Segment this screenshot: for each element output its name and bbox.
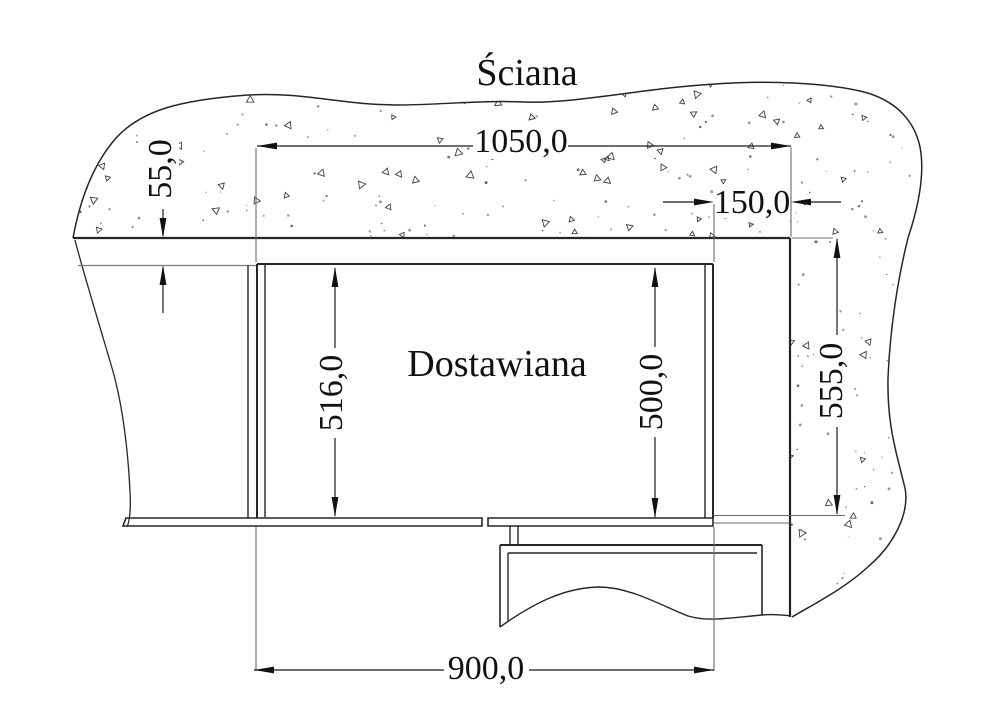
- stipple-dot: [881, 456, 882, 457]
- stipple-dot: [161, 432, 164, 435]
- dim-1050-arrow-left: [257, 143, 277, 150]
- stipple-dot: [355, 406, 357, 408]
- stipple-dot: [464, 287, 467, 290]
- stipple-dot: [375, 204, 377, 206]
- stipple-dot: [71, 268, 73, 270]
- stipple-dot: [206, 620, 207, 621]
- stipple-dot: [627, 476, 630, 479]
- stipple-dot: [166, 501, 168, 503]
- stipple-dot: [826, 171, 827, 172]
- stipple-triangle: [151, 477, 158, 483]
- stipple-dot: [797, 384, 800, 387]
- stipple-dot: [541, 566, 543, 568]
- stipple-dot: [861, 200, 863, 202]
- stipple-dot: [856, 488, 858, 490]
- stipple-dot: [195, 300, 197, 302]
- stipple-dot: [433, 485, 435, 487]
- stipple-dot: [468, 440, 470, 442]
- stipple-triangle: [355, 179, 365, 189]
- stipple-dot: [625, 257, 628, 260]
- stipple-dot: [177, 546, 180, 549]
- stipple-dot: [735, 445, 738, 448]
- countertop-band: [123, 516, 845, 527]
- stipple-dot: [888, 487, 891, 490]
- stipple-dot: [842, 577, 844, 579]
- stipple-dot: [487, 290, 490, 293]
- stipple-triangle: [834, 75, 843, 84]
- stipple-dot: [82, 599, 84, 601]
- stipple-dot: [96, 267, 98, 269]
- stipple-dot: [732, 420, 735, 423]
- stipple-dot: [474, 320, 476, 322]
- stipple-triangle: [171, 584, 181, 594]
- stipple-triangle: [455, 148, 464, 157]
- stipple-dot: [476, 587, 478, 589]
- stipple-dot: [911, 331, 913, 333]
- stipple-dot: [186, 329, 189, 332]
- stipple-triangle: [299, 348, 308, 357]
- stipple-dot: [82, 86, 84, 88]
- stipple-dot: [867, 601, 869, 603]
- stipple-triangle: [317, 169, 324, 177]
- stipple-dot: [151, 605, 153, 607]
- stipple-triangle: [475, 311, 482, 318]
- stipple-dot: [566, 533, 569, 536]
- stipple-triangle: [690, 112, 696, 118]
- stipple-dot: [274, 448, 276, 450]
- stipple-triangle: [463, 249, 472, 258]
- stipple-dot: [559, 232, 561, 234]
- stipple-dot: [424, 224, 426, 226]
- stipple-triangle: [115, 533, 123, 541]
- stipple-dot: [767, 443, 768, 444]
- stipple-dot: [767, 273, 769, 275]
- stipple-dot: [870, 501, 873, 504]
- stipple-dot: [70, 610, 73, 613]
- stipple-dot: [421, 606, 423, 608]
- stipple-triangle: [611, 388, 620, 397]
- stipple-dot: [320, 516, 322, 518]
- stipple-triangle: [601, 157, 606, 163]
- stipple-dot: [852, 114, 854, 116]
- stipple-dot: [380, 364, 382, 366]
- stipple-dot: [246, 210, 247, 211]
- stipple-dot: [826, 432, 829, 435]
- stipple-triangle: [356, 426, 363, 434]
- stipple-dot: [583, 423, 584, 424]
- stipple-dot: [654, 158, 656, 160]
- stipple-dot: [864, 452, 865, 453]
- stipple-dot: [737, 423, 739, 425]
- stipple-dot: [364, 458, 367, 461]
- stipple-dot: [670, 566, 672, 568]
- stipple-triangle: [658, 164, 667, 172]
- stipple-dot: [484, 513, 486, 515]
- stipple-dot: [497, 273, 498, 274]
- stipple-triangle: [481, 540, 489, 548]
- stipple-dot: [232, 347, 234, 349]
- stipple-triangle: [497, 321, 505, 329]
- stipple-dot: [889, 161, 891, 163]
- stipple-dot: [269, 329, 272, 332]
- stipple-dot: [275, 124, 278, 127]
- stipple-dot: [691, 213, 693, 215]
- stipple-dot: [127, 248, 128, 249]
- wall-title-label: Ściana: [476, 52, 577, 94]
- stipple-dot: [302, 527, 303, 528]
- stipple-dot: [392, 81, 394, 83]
- stipple-dot: [127, 263, 128, 264]
- stipple-dot: [807, 355, 809, 357]
- stipple-dot: [615, 332, 617, 334]
- stipple-dot: [252, 610, 253, 611]
- stipple-triangle: [104, 176, 110, 182]
- stipple-dot: [411, 506, 414, 509]
- stipple-dot: [99, 242, 101, 244]
- stipple-triangle: [593, 174, 601, 181]
- stipple-triangle: [424, 415, 429, 419]
- stipple-dot: [738, 262, 739, 263]
- stipple-dot: [739, 268, 742, 271]
- stipple-dot: [489, 317, 491, 319]
- stipple-dot: [462, 213, 464, 215]
- stipple-dot: [886, 274, 887, 275]
- stipple-dot: [486, 336, 488, 338]
- stipple-triangle: [250, 387, 255, 392]
- stipple-dot: [755, 307, 758, 310]
- stipple-triangle: [916, 558, 922, 564]
- band-left-segment: [123, 518, 482, 526]
- stipple-triangle: [697, 217, 701, 222]
- stipple-dot: [689, 82, 692, 85]
- stipple-dot: [715, 345, 717, 347]
- stipple-dot: [747, 346, 749, 348]
- stipple-dot: [340, 615, 343, 618]
- stipple-dot: [469, 258, 472, 261]
- stipple-dot: [210, 344, 212, 346]
- stipple-dot: [784, 420, 785, 421]
- stipple-triangle: [674, 559, 683, 568]
- stipple-triangle: [176, 437, 185, 446]
- dim-150-arrow-left: [694, 199, 714, 206]
- stipple-dot: [800, 404, 803, 407]
- stipple-dot: [314, 172, 316, 174]
- stipple-triangle: [679, 99, 685, 105]
- stipple-dot: [898, 571, 901, 574]
- dimension-55: 55,0: [142, 129, 179, 313]
- stipple-dot: [892, 284, 894, 286]
- stipple-triangle: [276, 555, 280, 560]
- stipple-dot: [529, 600, 531, 602]
- stipple-dot: [802, 273, 805, 276]
- stipple-triangle: [219, 82, 227, 91]
- stipple-dot: [466, 406, 468, 408]
- stipple-triangle: [228, 354, 236, 361]
- stipple-dot: [353, 545, 356, 548]
- stipple-triangle: [206, 606, 213, 613]
- stipple-triangle: [770, 420, 778, 427]
- stipple-triangle: [684, 392, 690, 398]
- stipple-dot: [419, 436, 421, 438]
- stipple-dot: [474, 512, 476, 514]
- stipple-dot: [892, 135, 895, 138]
- stipple-triangle: [320, 566, 328, 574]
- stipple-triangle: [817, 125, 823, 131]
- stipple-dot: [512, 429, 514, 431]
- stipple-dot: [714, 468, 716, 470]
- stipple-triangle: [70, 578, 79, 587]
- stipple-dot: [631, 322, 633, 324]
- stipple-triangle: [205, 380, 213, 389]
- bottom-break-line: [500, 587, 791, 627]
- stipple-dot: [383, 229, 385, 231]
- stipple-triangle: [456, 397, 463, 404]
- stipple-dot: [708, 216, 710, 218]
- stipple-dot: [422, 541, 425, 544]
- stipple-dot: [582, 548, 584, 550]
- stipple-dot: [855, 451, 857, 453]
- stipple-dot: [804, 538, 806, 540]
- stipple-dot: [644, 510, 647, 513]
- stipple-triangle: [349, 344, 355, 351]
- stipple-triangle: [261, 568, 268, 575]
- stipple-dot: [899, 366, 901, 368]
- stipple-dot: [854, 103, 857, 106]
- stipple-triangle: [563, 330, 569, 336]
- band-connector: [510, 526, 518, 545]
- stipple-dot: [796, 449, 798, 451]
- stipple-triangle: [833, 228, 839, 235]
- stipple-dot: [322, 199, 324, 201]
- stipple-dot: [702, 506, 704, 508]
- stipple-triangle: [694, 90, 702, 99]
- stipple-dot: [309, 470, 310, 471]
- stipple-dot: [354, 135, 356, 137]
- stipple-dot: [223, 557, 225, 559]
- stipple-triangle: [514, 490, 521, 497]
- stipple-triangle: [195, 282, 202, 289]
- stipple-dot: [597, 597, 600, 600]
- stipple-dot: [879, 256, 881, 258]
- stipple-triangle: [747, 143, 754, 150]
- stipple-dot: [330, 478, 331, 479]
- stipple-triangle: [844, 520, 852, 529]
- stipple-dot: [136, 141, 138, 143]
- stipple-dot: [423, 254, 426, 257]
- stipple-triangle: [344, 327, 349, 333]
- stipple-dot: [302, 561, 304, 563]
- stipple-triangle: [228, 276, 237, 284]
- stipple-triangle: [897, 353, 904, 359]
- dimension-150: 150,0: [663, 184, 841, 221]
- stipple-triangle: [200, 407, 205, 413]
- stipple-dot: [782, 121, 785, 124]
- stipple-triangle: [358, 501, 365, 508]
- stipple-triangle: [427, 579, 434, 587]
- stipple-dot: [170, 530, 172, 532]
- stipple-dot: [101, 513, 103, 515]
- stipple-dot: [916, 484, 918, 486]
- stipple-dot: [601, 93, 603, 95]
- stipple-dot: [108, 208, 110, 210]
- stipple-triangle: [242, 265, 250, 273]
- stipple-dot: [695, 502, 697, 504]
- dim-55-arrow-up: [160, 265, 167, 285]
- stipple-dot: [191, 552, 194, 555]
- stipple-triangle: [478, 604, 482, 609]
- stipple-dot: [608, 406, 610, 408]
- stipple-dot: [798, 102, 799, 103]
- stipple-triangle: [91, 135, 99, 144]
- stipple-triangle: [682, 576, 686, 581]
- stipple-dot: [830, 95, 832, 97]
- stipple-dot: [912, 326, 914, 328]
- stipple-dot: [901, 436, 904, 439]
- stipple-triangle: [386, 204, 394, 212]
- stipple-dot: [242, 113, 244, 115]
- stipple-triangle: [694, 273, 702, 280]
- stipple-dot: [524, 179, 526, 181]
- stipple-dot: [590, 314, 592, 316]
- stipple-dot: [856, 394, 858, 396]
- stipple-dot: [414, 404, 417, 407]
- stipple-dot: [706, 449, 707, 450]
- dim-900-arrow-left: [254, 667, 274, 674]
- stipple-triangle: [909, 89, 916, 95]
- stipple-dot: [489, 466, 492, 469]
- stipple-dot: [398, 79, 400, 81]
- stipple-dot: [239, 572, 241, 574]
- technical-drawing: 1050,0 55,0 150,0 516,0: [0, 0, 1000, 706]
- stipple-triangle: [285, 559, 291, 565]
- stipple-dot: [711, 254, 713, 256]
- stipple-triangle: [284, 120, 293, 129]
- stipple-dot: [230, 393, 232, 395]
- dim-150-arrow-right: [791, 199, 811, 206]
- stipple-dot: [887, 360, 888, 361]
- stipple-dot: [673, 471, 675, 473]
- dim-555-arrow-down: [834, 495, 841, 515]
- stipple-dot: [630, 609, 633, 612]
- stipple-dot: [867, 171, 869, 173]
- stipple-triangle: [747, 221, 753, 227]
- stipple-dot: [233, 89, 235, 91]
- stipple-dot: [326, 459, 329, 462]
- stipple-dot: [348, 497, 350, 499]
- stipple-triangle: [576, 85, 586, 95]
- stipple-dot: [741, 468, 743, 470]
- stipple-triangle: [860, 115, 866, 121]
- stipple-triangle: [246, 96, 255, 106]
- stipple-triangle: [195, 356, 202, 363]
- stipple-dot: [605, 200, 608, 203]
- stipple-triangle: [84, 127, 90, 134]
- stipple-triangle: [812, 77, 820, 84]
- stipple-dot: [298, 446, 299, 447]
- stipple-dot: [137, 573, 138, 574]
- stipple-triangle: [745, 408, 754, 417]
- stipple-dot: [535, 565, 537, 567]
- stipple-dot: [532, 396, 535, 399]
- stipple-dot: [741, 475, 743, 477]
- dim-500-arrow-down: [652, 498, 659, 518]
- stipple-dot: [692, 387, 693, 388]
- stipple-dot: [447, 156, 450, 159]
- stipple-dot: [284, 260, 286, 262]
- stipple-triangle: [803, 342, 812, 351]
- stipple-dot: [293, 595, 295, 597]
- stipple-dot: [100, 222, 102, 224]
- stipple-dot: [799, 423, 802, 426]
- stipple-triangle: [685, 302, 692, 309]
- stipple-triangle: [720, 603, 730, 613]
- stipple-dot: [199, 489, 201, 491]
- stipple-dot: [71, 409, 74, 412]
- stipple-dot: [426, 234, 428, 236]
- stipple-dot: [683, 337, 684, 338]
- stipple-dot: [815, 240, 818, 243]
- stipple-triangle: [478, 466, 484, 472]
- stipple-dot: [462, 386, 465, 389]
- stipple-triangle: [575, 553, 581, 560]
- stipple-dot: [837, 583, 839, 585]
- stipple-triangle: [437, 138, 443, 144]
- stipple-dot: [848, 536, 849, 537]
- stipple-dot: [516, 293, 517, 294]
- stipple-dot: [864, 486, 865, 487]
- stipple-dot: [733, 447, 735, 449]
- stipple-dot: [750, 496, 751, 497]
- stipple-dot: [220, 191, 221, 192]
- stipple-triangle: [396, 169, 404, 177]
- stipple-triangle: [99, 161, 107, 169]
- stipple-dot: [508, 509, 510, 511]
- stipple-dot: [696, 585, 698, 587]
- stipple-dot: [380, 110, 382, 112]
- stipple-dot: [699, 126, 701, 128]
- stipple-dot: [672, 595, 674, 597]
- stipple-dot: [603, 424, 605, 426]
- stipple-dot: [537, 327, 538, 328]
- stipple-dot: [75, 135, 78, 138]
- stipple-dot: [99, 544, 101, 546]
- stipple-dot: [922, 386, 923, 387]
- stipple-triangle: [890, 371, 897, 379]
- stipple-dot: [376, 542, 378, 544]
- stipple-dot: [385, 610, 387, 612]
- stipple-triangle: [225, 526, 233, 535]
- stipple-dot: [142, 486, 144, 488]
- stipple-dot: [714, 507, 716, 509]
- stipple-triangle: [300, 409, 308, 416]
- stipple-triangle: [349, 363, 358, 372]
- stipple-dot: [226, 133, 228, 135]
- stipple-dot: [71, 623, 73, 625]
- stipple-triangle: [895, 329, 902, 336]
- stipple-dot: [858, 205, 860, 207]
- stipple-dot: [378, 195, 379, 196]
- stipple-dot: [178, 597, 179, 598]
- stipple-dot: [797, 221, 798, 222]
- stipple-dot: [322, 509, 325, 512]
- stipple-triangle: [189, 544, 195, 549]
- stipple-triangle: [746, 473, 755, 481]
- stipple-dot: [385, 290, 387, 292]
- stipple-dot: [396, 601, 397, 602]
- stipple-dot: [345, 519, 347, 521]
- stipple-dot: [906, 476, 909, 479]
- stipple-dot: [293, 391, 295, 393]
